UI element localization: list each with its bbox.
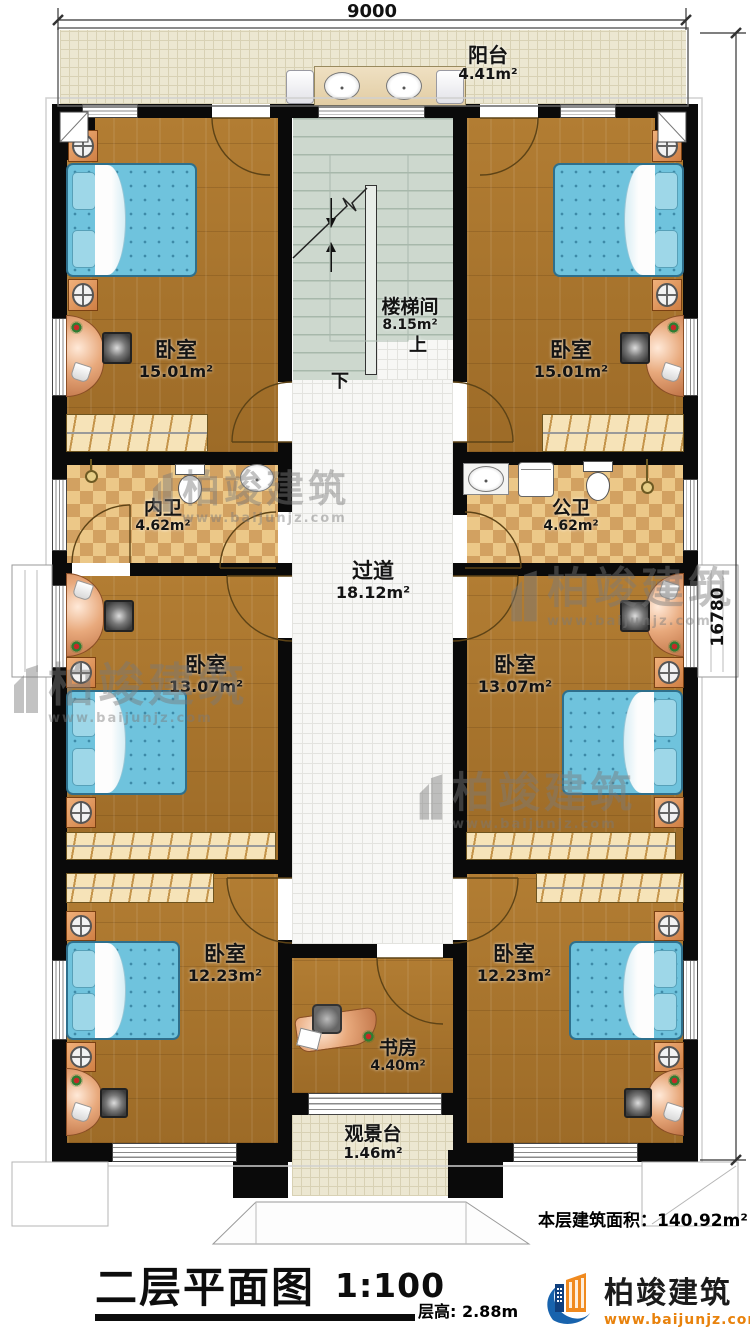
toilet-icon [583,461,613,501]
room-area: 4.62m² [531,519,611,535]
watermark-building-icon [414,772,446,822]
nightstand [654,797,684,828]
porch-column [233,1150,288,1198]
room-name: 书房 [357,1038,439,1059]
corridor-floor [292,380,453,944]
bed [569,941,683,1040]
dimension-right: 16780 [687,587,749,647]
watermark: 柏竣建筑 www.baijunjz.com [148,470,350,526]
wall [52,1143,112,1162]
wall [278,118,292,382]
plant-icon [668,640,681,653]
window [112,1143,237,1162]
room-area: 12.23m² [179,967,271,985]
room-name: 楼梯间 [368,297,452,318]
window [52,960,67,1040]
porch-left [12,1162,108,1226]
wall [683,396,698,479]
wall [138,104,212,118]
watermark-brand: 柏竣建筑 [452,772,636,814]
room-name: 观景台 [328,1124,418,1145]
room-label-study: 书房 4.40m² [357,1038,439,1075]
wall [683,104,698,318]
watermark-url: www.baijunjz.com [182,511,350,526]
wall [425,104,480,118]
wall [130,563,292,576]
window [52,318,67,396]
watermark-brand: 柏竣建筑 [182,470,350,508]
floor-plan: 9000 16780 阳台 4.41m² 楼梯间 8.15m² 上 下 卧室 1… [0,0,750,1336]
nightstand [66,797,96,828]
room-label-corridor: 过道 18.12m² [328,560,418,601]
shower-icon [641,481,654,494]
room-label-bedroom-mid-right: 卧室 13.07m² [469,654,561,695]
room-label-stairwell: 楼梯间 8.15m² [368,297,452,334]
wall [52,396,67,479]
wall [453,118,467,382]
title-underline [95,1314,415,1321]
room-area: 15.01m² [525,363,617,381]
wardrobe [66,414,208,452]
window [308,1093,442,1115]
wall [538,104,560,118]
tv-icon [102,332,132,364]
watermark-url: www.baijunjz.com [48,711,248,726]
room-area: 4.41m² [448,66,528,83]
nightstand [652,279,682,311]
watermark-building-icon [148,470,176,514]
wall [270,104,318,118]
room-label-bath-public: 公卫 4.62m² [531,498,611,535]
watermark-url: www.baijunjz.com [452,817,636,832]
wall [443,944,467,958]
nightstand [654,657,684,688]
plant-icon [70,640,83,653]
watermark-building-icon [8,662,42,716]
sink-icon [386,72,422,100]
floor-area-note: 本层建筑面积：140.92m² [538,1206,748,1231]
shower-icon [85,470,98,483]
window [683,960,698,1040]
room-name: 卧室 [525,339,617,363]
sink-icon [468,466,504,492]
bed [66,163,197,277]
window [52,479,67,551]
room-area: 15.01m² [130,363,222,381]
wall [278,638,292,878]
nightstand [654,911,684,941]
window [318,104,425,118]
logo-brand: 柏竣建筑 [604,1268,750,1312]
stair-up-label: 上 [404,336,432,356]
watermark-brand: 柏竣建筑 [48,662,248,708]
room-name: 卧室 [179,943,271,967]
plant-icon [667,321,680,334]
room-area: 13.07m² [469,678,561,696]
wardrobe [536,873,684,903]
room-label-bedroom-bottom-left: 卧室 12.23m² [179,943,271,984]
room-name: 卧室 [130,339,222,363]
watermark: 柏竣建筑 www.baijunjz.com [414,772,636,832]
wall [278,940,292,1162]
room-area: 8.15m² [368,318,452,334]
tv-icon [620,332,650,364]
wall [683,668,698,960]
room-name: 过道 [328,560,418,584]
watermark-building-icon [505,568,541,624]
wall [52,860,292,874]
wall [278,1093,308,1115]
room-area: 18.12m² [328,584,418,602]
plant-icon [70,321,83,334]
plant-icon [668,1074,681,1087]
tv-icon [100,1088,128,1118]
wall [453,940,467,1162]
sink-icon [324,72,360,100]
bed [553,163,684,277]
room-area: 4.40m² [357,1059,439,1075]
wall [442,1093,467,1115]
wall [453,638,467,878]
tv-icon [624,1088,652,1118]
nightstand [68,130,98,162]
room-label-bedroom-bottom-right: 卧室 12.23m² [468,943,560,984]
room-name: 阳台 [448,44,528,66]
washing-machine-icon [518,462,554,497]
wall [278,944,377,958]
page-title: 二层平面图 [95,1254,315,1315]
logo-url: www.baijunjz.com [604,1312,750,1328]
company-logo: 柏竣建筑 www.baijunjz.com [544,1268,750,1328]
room-label-bedroom-top-right: 卧室 15.01m² [525,339,617,380]
porch-column [448,1150,503,1198]
room-name: 公卫 [531,498,611,519]
wall [52,104,67,318]
room-label-view-deck: 观景台 1.46m² [328,1124,418,1162]
window [683,318,698,396]
plant-icon [70,1074,83,1087]
entry-canopy [213,1202,529,1244]
window [52,585,67,668]
wardrobe [542,414,684,452]
floor-area-value: 140.92m² [657,1211,748,1231]
room-label-bedroom-top-left: 卧室 15.01m² [130,339,222,380]
wardrobe [466,832,676,860]
wall [638,1143,698,1162]
floor-area-label: 本层建筑面积： [538,1211,657,1231]
stair-down-label: 下 [326,372,354,392]
bed [66,941,180,1040]
floor-height-label: 层高: 2.88m [418,1298,518,1322]
window [683,479,698,551]
logo-building-icon [544,1268,596,1324]
dimension-top: 9000 [330,1,414,22]
nightstand [652,130,682,162]
tv-icon [104,600,134,632]
watermark: 柏竣建筑 www.baijunjz.com [8,662,248,726]
window [560,104,616,118]
wardrobe [66,832,276,860]
wardrobe [66,873,214,903]
bay-window-left [12,565,52,677]
room-name: 卧室 [468,943,560,967]
nightstand [68,279,98,311]
window [82,104,138,118]
stair-rail [365,185,377,375]
room-area: 12.23m² [468,967,560,985]
pedestal [286,70,314,104]
room-label-balcony: 阳台 4.41m² [448,44,528,83]
room-name: 卧室 [469,654,561,678]
chair-icon [312,1004,342,1034]
window [513,1143,638,1162]
room-area: 1.46m² [328,1145,418,1162]
wall [453,860,698,874]
nightstand [66,911,96,941]
